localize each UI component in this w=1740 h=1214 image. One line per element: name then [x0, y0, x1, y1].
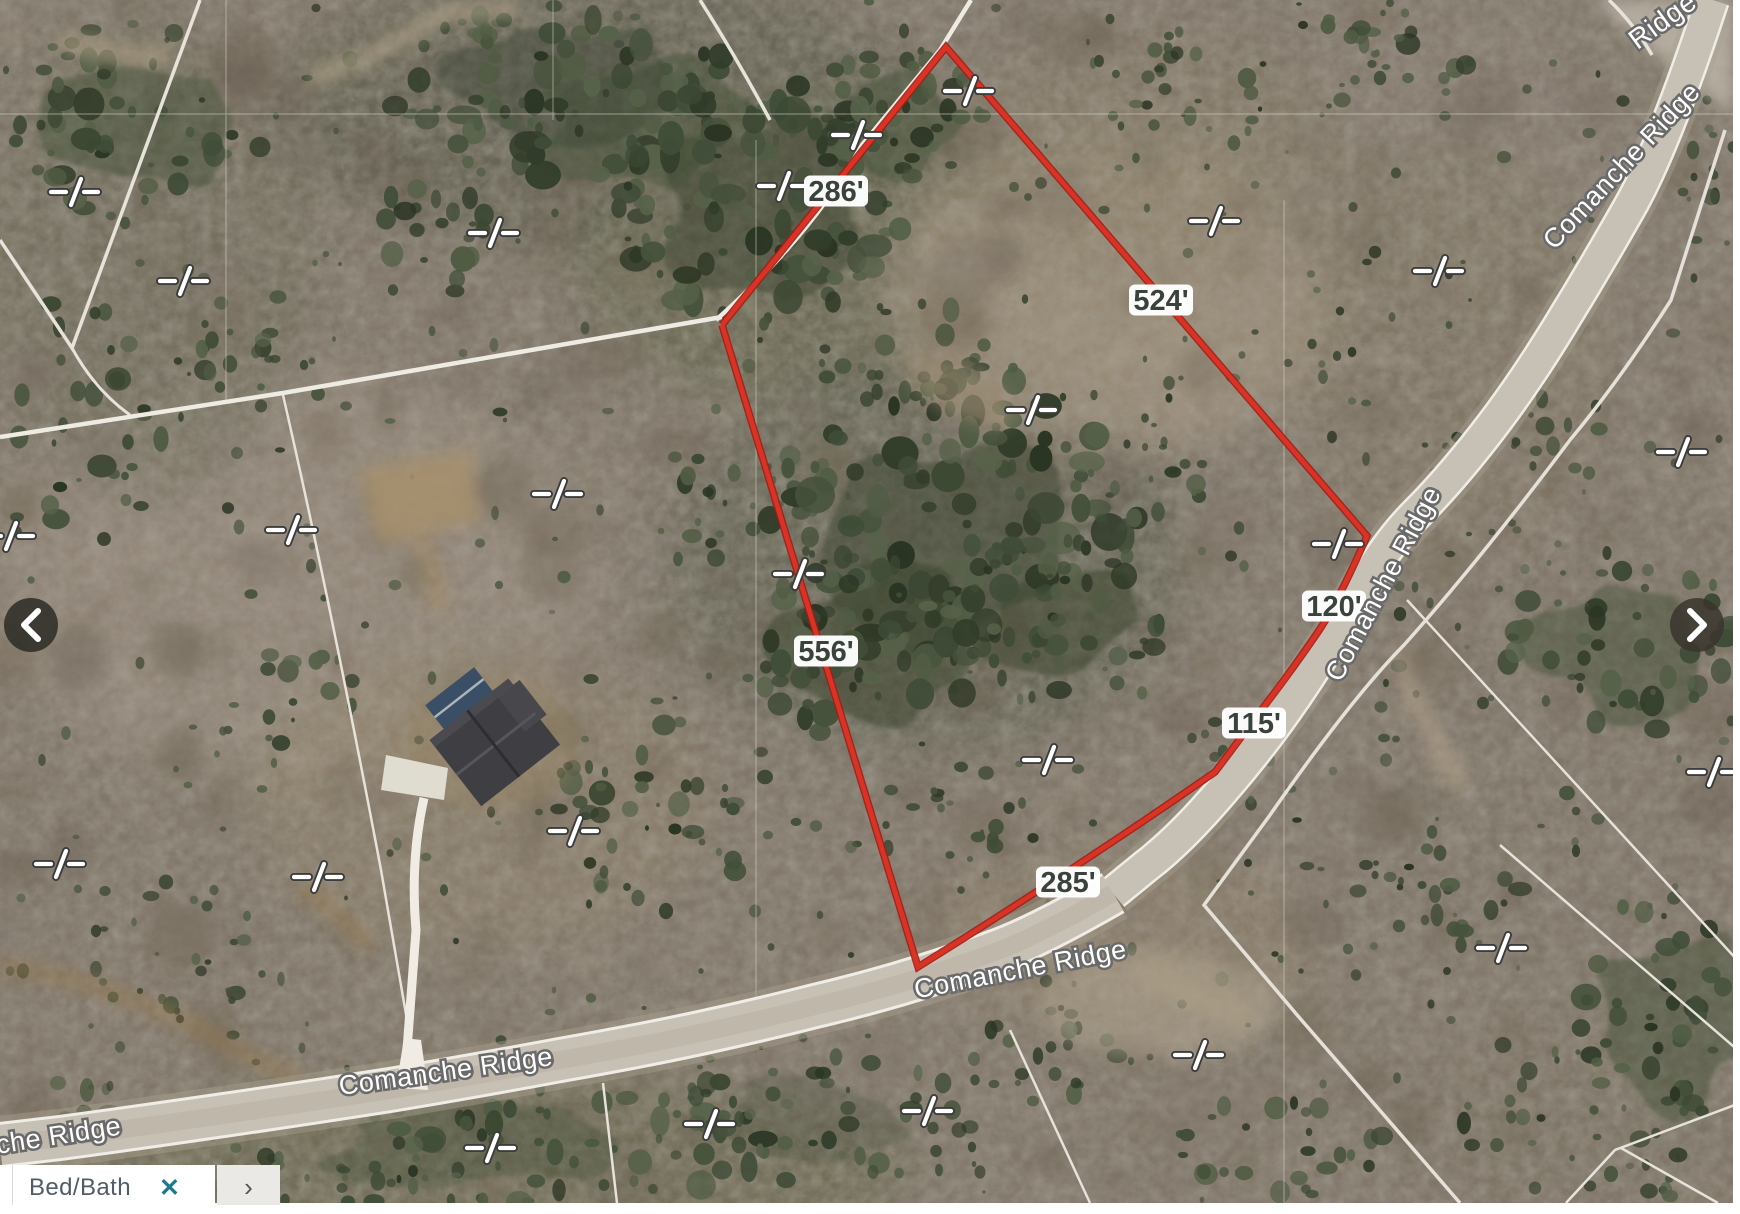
- svg-text:556': 556': [798, 636, 853, 668]
- svg-text:285': 285': [1040, 867, 1095, 899]
- svg-text:524': 524': [1133, 285, 1188, 317]
- svg-text:115': 115': [1227, 708, 1281, 740]
- svg-text:286': 286': [808, 176, 863, 208]
